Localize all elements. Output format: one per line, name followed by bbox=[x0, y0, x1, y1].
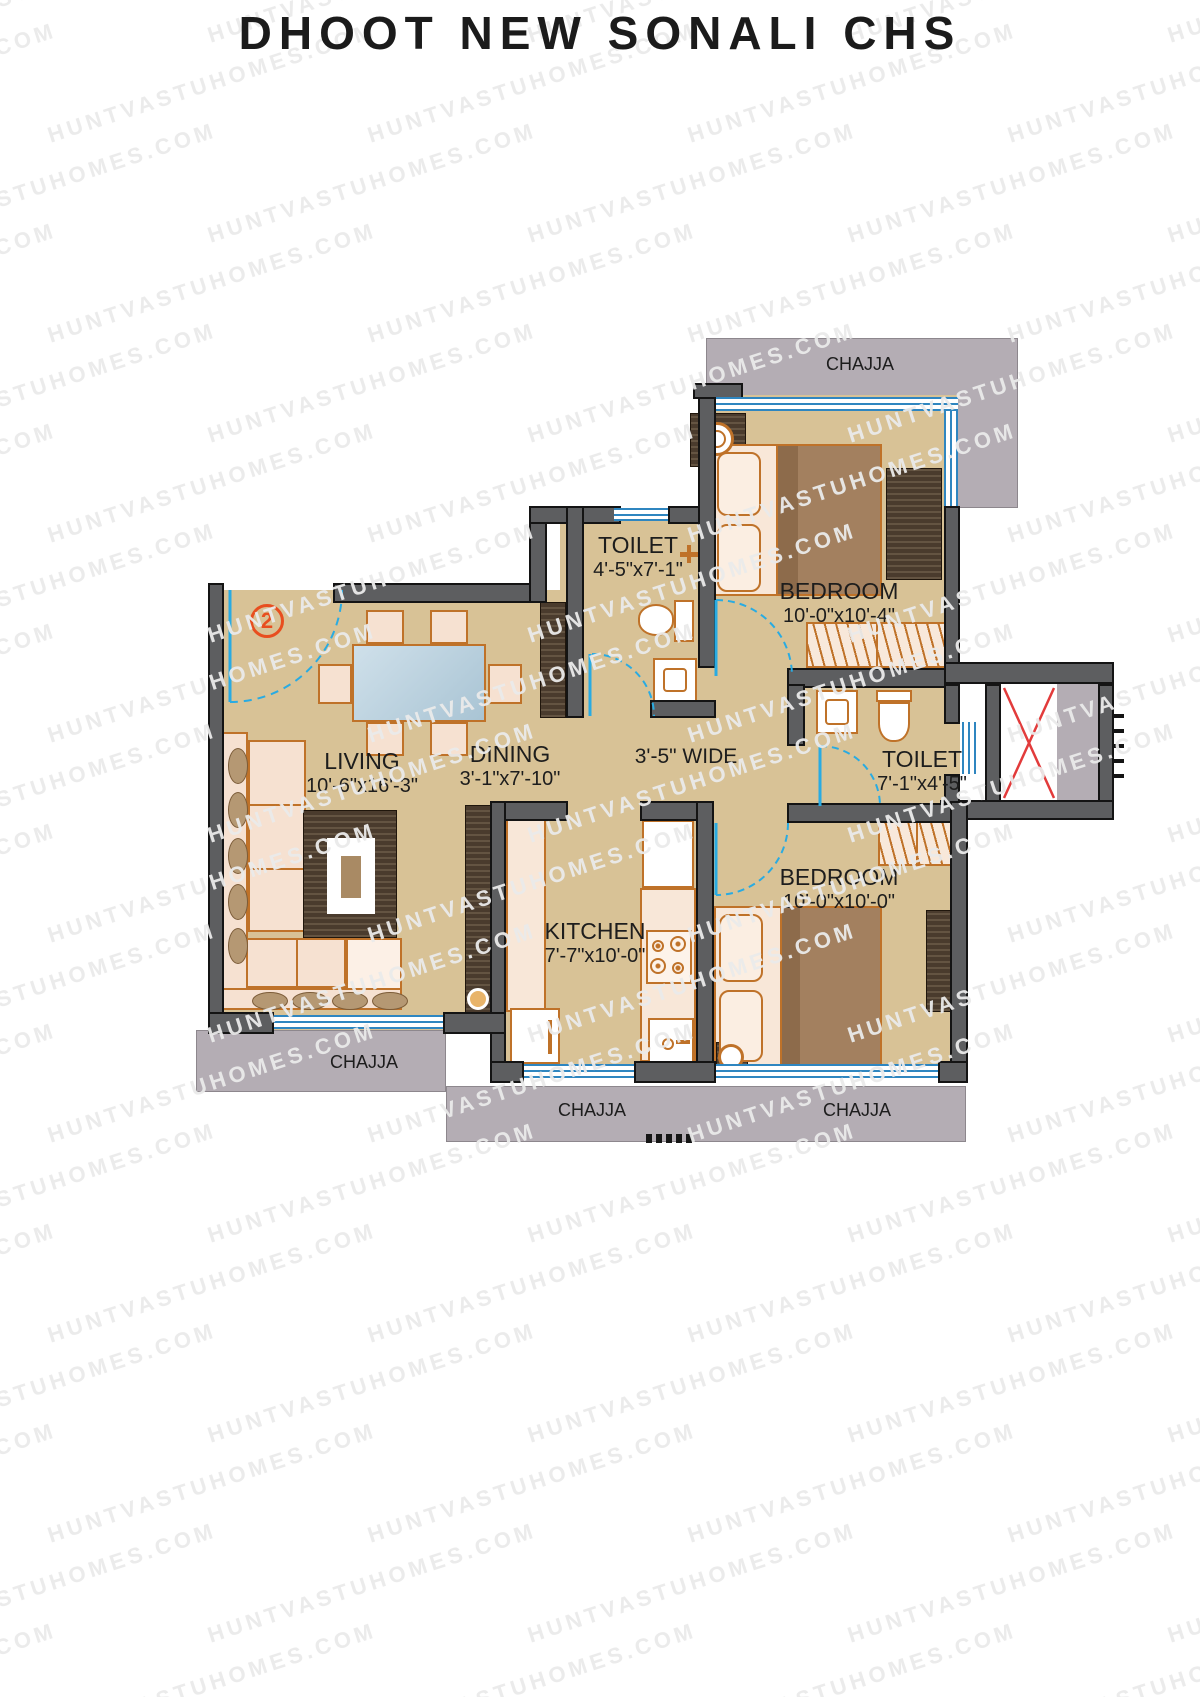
door-arc-bedroom-bottom bbox=[716, 823, 788, 895]
room-dims: 3'-1"x7'-10" bbox=[460, 768, 561, 790]
living-label: LIVING 10'-6"x16'-3" bbox=[306, 750, 418, 797]
room-name: TOILET bbox=[593, 534, 683, 557]
door-arc-toilet-right bbox=[820, 746, 880, 806]
lift-x-icon bbox=[1004, 688, 1054, 798]
room-name: BEDROOM bbox=[780, 866, 899, 889]
door-arc-toilet-top bbox=[592, 654, 654, 716]
room-name: TOILET bbox=[877, 748, 967, 771]
room-name: DINING bbox=[460, 743, 561, 766]
plan-annotations bbox=[0, 0, 1200, 1697]
room-name: LIVING bbox=[306, 750, 418, 773]
chajja-label-bottom-right: CHAJJA bbox=[823, 1101, 891, 1119]
passage-label: 3'-5" WIDE bbox=[635, 747, 737, 766]
toilet-right-label: TOILET 7'-1"x4'-5" bbox=[877, 748, 967, 795]
bedroom-top-label: BEDROOM 10'-0"x10'-4" bbox=[780, 580, 899, 627]
room-dims: 10'-6"x16'-3" bbox=[306, 775, 418, 797]
room-name: KITCHEN bbox=[545, 920, 646, 943]
kitchen-label: KITCHEN 7'-7"x10'-0" bbox=[545, 920, 646, 967]
dining-label: DINING 3'-1"x7'-10" bbox=[460, 743, 561, 790]
page-title: DHOOT NEW SONALI CHS bbox=[0, 6, 1200, 60]
room-name: BEDROOM bbox=[780, 580, 899, 603]
room-dims: 10'-0"x10'-4" bbox=[780, 605, 899, 627]
chajja-label-left: CHAJJA bbox=[330, 1053, 398, 1071]
room-dims: 7'-1"x4'-5" bbox=[877, 773, 967, 795]
entry-number-text: 2 bbox=[261, 608, 273, 634]
floor-plan-page: DHOOT NEW SONALI CHS HUNTVASTUHOMES.COMH… bbox=[0, 0, 1200, 1697]
bedroom-bottom-label: BEDROOM 10'-0"x10'-0" bbox=[780, 866, 899, 913]
room-dims: 4'-5"x7'-1" bbox=[593, 559, 683, 581]
toilet-top-label: TOILET 4'-5"x7'-1" bbox=[593, 534, 683, 581]
chajja-label-top: CHAJJA bbox=[826, 355, 894, 373]
chajja-label-bottom-left: CHAJJA bbox=[558, 1101, 626, 1119]
entry-door-number: 2 bbox=[250, 604, 284, 638]
room-dims: 7'-7"x10'-0" bbox=[545, 945, 646, 967]
door-arc-entry bbox=[230, 590, 342, 702]
room-dims: 10'-0"x10'-0" bbox=[780, 891, 899, 913]
